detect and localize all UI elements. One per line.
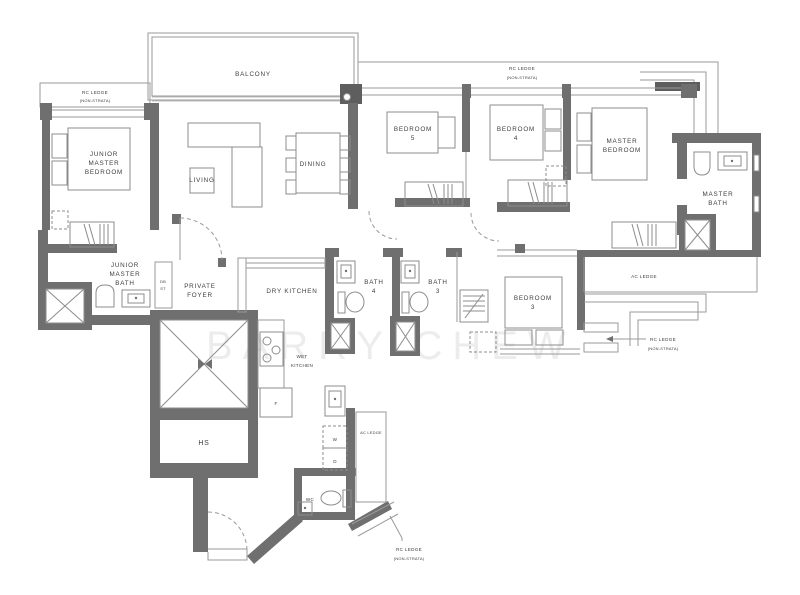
toilet-icon (346, 292, 364, 312)
svg-text:BEDROOM: BEDROOM (394, 126, 432, 133)
bedroom-5: BEDROOM 5 (369, 112, 463, 239)
svg-text:MASTER: MASTER (88, 160, 119, 167)
private-foyer: PRIVATE FOYER (180, 218, 222, 299)
toilet-icon (321, 491, 341, 505)
wc: WC (298, 490, 351, 515)
master-bedroom: MASTER BEDROOM (577, 108, 676, 248)
floorplan-page: BARRY CHEW BALCONY RC LEDGE (NON-STRATA)… (0, 0, 800, 595)
svg-text:PRIVATE: PRIVATE (184, 283, 216, 290)
svg-text:BATH: BATH (708, 200, 728, 207)
svg-text:BEDROOM: BEDROOM (497, 126, 535, 133)
dry-kitchen: DRY KITCHEN (238, 258, 325, 312)
living-room: LIVING (188, 123, 262, 207)
rc-ledge-top-left: RC LEDGE (NON-STRATA) (40, 83, 150, 107)
door-arc (208, 512, 247, 551)
svg-text:3: 3 (531, 304, 535, 311)
svg-text:4: 4 (372, 288, 376, 295)
rc-ledge-top-right: RC LEDGE (NON-STRATA) (358, 62, 718, 135)
rc-ledge-label: RC LEDGE (82, 90, 108, 95)
toilet-icon (694, 152, 710, 175)
svg-text:MASTER: MASTER (702, 191, 733, 198)
svg-text:AC LEDGE: AC LEDGE (631, 274, 657, 279)
junior-master-bath: JUNIOR MASTER BATH (96, 262, 150, 307)
svg-text:JUNIOR: JUNIOR (111, 262, 139, 269)
svg-text:DB: DB (160, 279, 166, 284)
svg-text:5: 5 (411, 135, 415, 142)
bath-3: BATH 3 (401, 261, 448, 313)
balcony: BALCONY (148, 33, 362, 104)
window-bands (40, 84, 697, 120)
svg-text:W: W (333, 437, 338, 442)
svg-text:WET: WET (296, 354, 307, 359)
svg-text:DINING: DINING (300, 161, 327, 168)
svg-text:BEDROOM: BEDROOM (514, 295, 552, 302)
non-strata-label: (NON-STRATA) (80, 98, 111, 103)
sofa (232, 147, 262, 207)
ac-ledge-bottom: AC LEDGE (356, 412, 386, 502)
svg-text:(NON-STRATA): (NON-STRATA) (394, 556, 425, 561)
wardrobe (612, 222, 676, 248)
svg-text:3: 3 (436, 288, 440, 295)
door-arc (471, 213, 499, 241)
svg-text:BATH: BATH (115, 280, 135, 287)
balcony-label: BALCONY (235, 71, 271, 78)
bath-4: BATH 4 (337, 261, 384, 313)
junior-master-bedroom: JUNIOR MASTER BEDROOM (52, 128, 130, 247)
rc-ledge-label: RC LEDGE (509, 66, 535, 71)
svg-text:KITCHEN: KITCHEN (291, 363, 313, 368)
dining-room: DINING (286, 133, 350, 194)
toilet-icon (96, 285, 114, 307)
svg-text:LIVING: LIVING (189, 177, 214, 184)
svg-text:JUNIOR: JUNIOR (90, 151, 118, 158)
svg-text:ST: ST (160, 286, 166, 291)
svg-text:AC LEDGE: AC LEDGE (360, 430, 382, 435)
svg-text:(NON-STRATA): (NON-STRATA) (648, 346, 679, 351)
downpipe-icon (344, 94, 351, 101)
diagonal-wall-left (247, 513, 303, 564)
entrance (208, 512, 247, 560)
bedroom-4: BEDROOM 4 (471, 105, 567, 241)
door-arc (180, 218, 222, 260)
hs-label: HS (198, 440, 209, 447)
svg-text:4: 4 (514, 135, 518, 142)
svg-text:F: F (274, 401, 277, 406)
door-arc (369, 211, 397, 239)
svg-text:BEDROOM: BEDROOM (603, 147, 641, 154)
svg-text:MASTER: MASTER (606, 138, 637, 145)
svg-text:FOYER: FOYER (187, 292, 213, 299)
ac-ledge-right: AC LEDGE RC LEDGE (NON-STRATA) (584, 257, 757, 352)
db-st-closet: DB ST (155, 262, 172, 308)
svg-text:BEDROOM: BEDROOM (85, 169, 123, 176)
svg-text:D: D (333, 459, 337, 464)
floorplan-drawing: BARRY CHEW BALCONY RC LEDGE (NON-STRATA)… (0, 0, 800, 595)
bed (68, 128, 130, 190)
leader-arrow (606, 336, 613, 342)
toilet-icon (410, 292, 428, 312)
svg-text:RC LEDGE: RC LEDGE (396, 547, 422, 552)
wall-pillar (340, 84, 362, 104)
svg-text:BATH: BATH (364, 279, 384, 286)
sofa (188, 123, 260, 147)
master-bath: MASTER BATH (694, 152, 747, 207)
svg-text:RC LEDGE: RC LEDGE (650, 337, 676, 342)
svg-text:WC: WC (306, 497, 315, 502)
svg-text:MASTER: MASTER (109, 271, 140, 278)
dashed-fixture (52, 211, 68, 229)
svg-text:BATH: BATH (428, 279, 448, 286)
svg-text:DRY KITCHEN: DRY KITCHEN (266, 288, 317, 295)
non-strata-label: (NON-STRATA) (507, 75, 538, 80)
bed (505, 277, 562, 328)
